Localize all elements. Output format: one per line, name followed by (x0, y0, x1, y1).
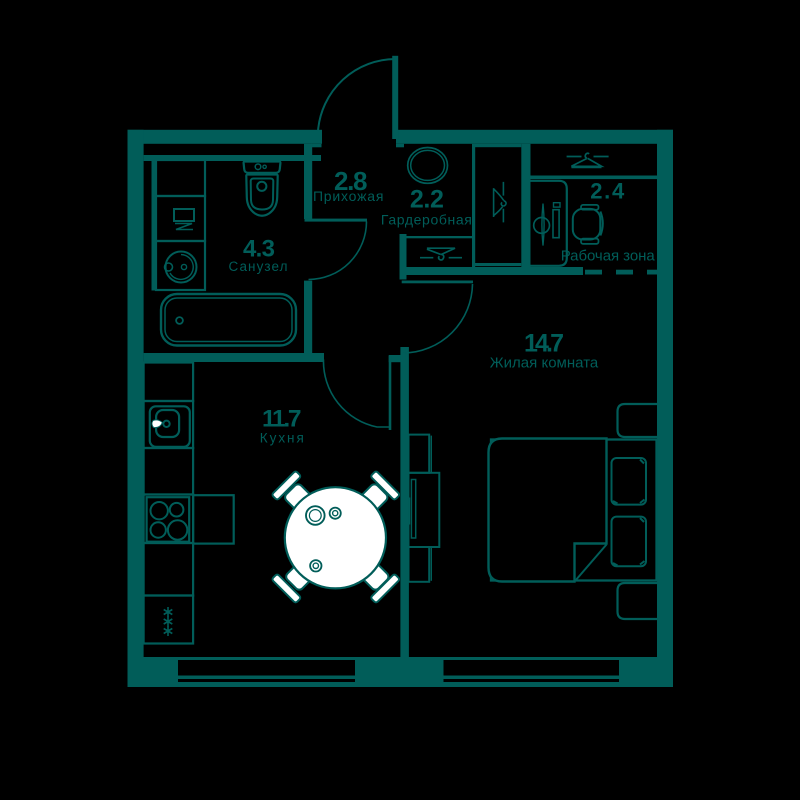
svg-text:Гардеробная: Гардеробная (381, 211, 472, 227)
svg-text:Санузел: Санузел (229, 259, 288, 274)
svg-text:14.7: 14.7 (524, 329, 564, 357)
svg-text:Рабочая зона: Рабочая зона (561, 247, 656, 264)
svg-text:Жилая комната: Жилая комната (490, 355, 599, 372)
svg-text:2.2: 2.2 (410, 185, 444, 213)
svg-text:Прихожая: Прихожая (313, 188, 384, 204)
svg-text:11.7: 11.7 (262, 405, 302, 432)
svg-text:2.4: 2.4 (590, 179, 625, 204)
svg-text:Кухня: Кухня (260, 430, 304, 445)
